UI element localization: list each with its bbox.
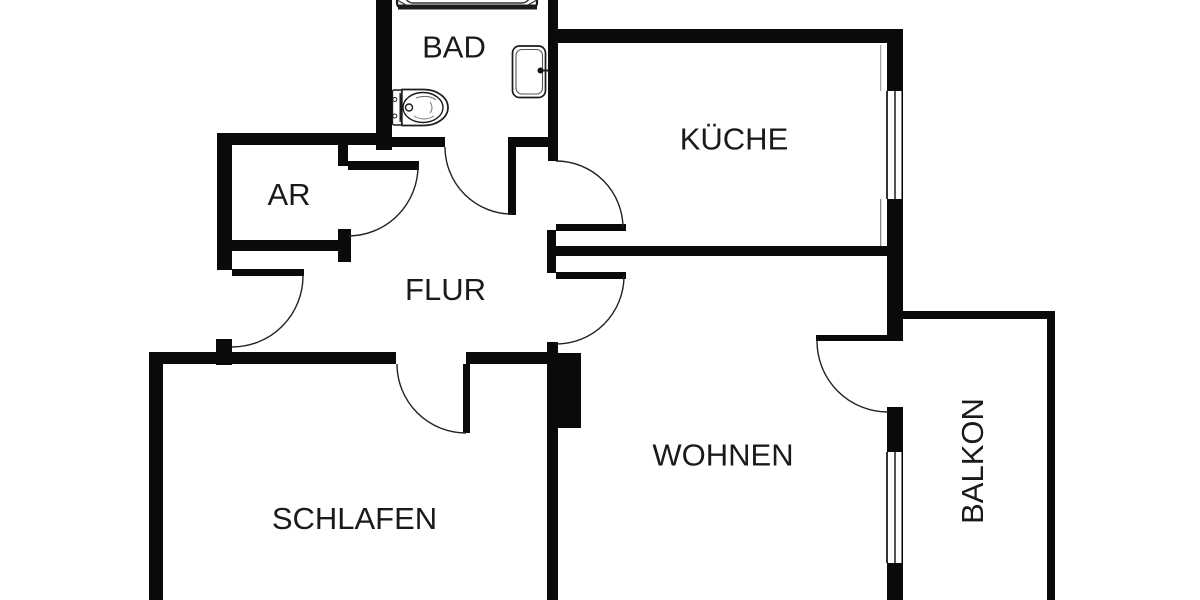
svg-text:BALKON: BALKON bbox=[955, 398, 990, 524]
svg-text:SCHLAFEN: SCHLAFEN bbox=[272, 501, 437, 536]
svg-text:AR: AR bbox=[267, 177, 310, 212]
svg-text:FLUR: FLUR bbox=[405, 272, 486, 307]
svg-text:BAD: BAD bbox=[422, 30, 486, 65]
svg-text:KÜCHE: KÜCHE bbox=[680, 122, 789, 157]
svg-text:WOHNEN: WOHNEN bbox=[652, 438, 793, 473]
